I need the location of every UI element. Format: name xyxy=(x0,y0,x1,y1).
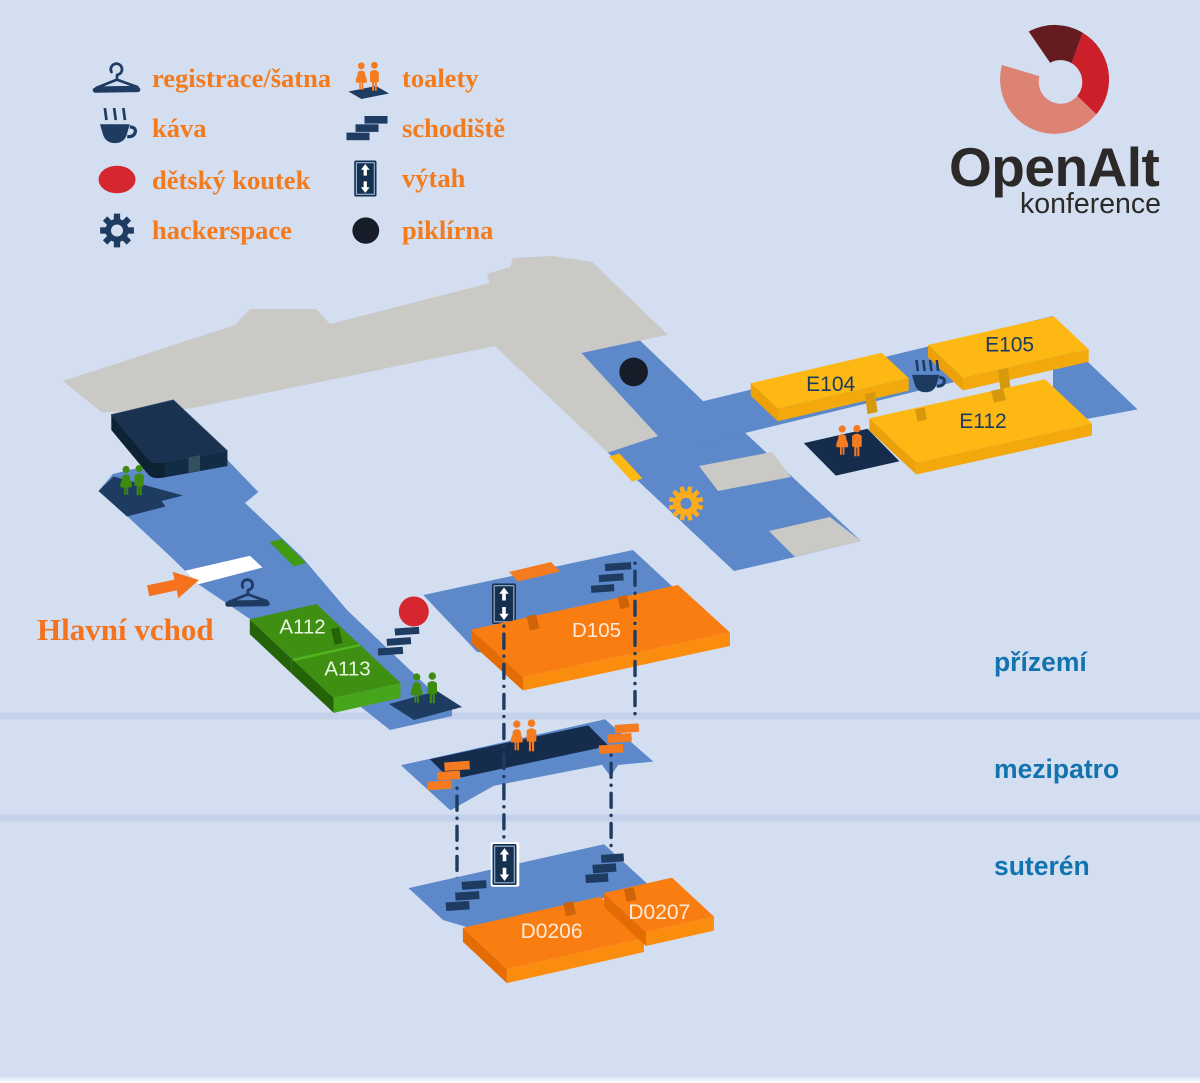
svg-text:E104: E104 xyxy=(806,373,855,396)
svg-text:suterén: suterén xyxy=(994,851,1090,881)
svg-text:E112: E112 xyxy=(959,410,1007,433)
svg-text:schodiště: schodiště xyxy=(402,113,505,143)
svg-text:A113: A113 xyxy=(324,658,370,681)
svg-text:A112: A112 xyxy=(279,616,325,639)
svg-text:E105: E105 xyxy=(985,334,1034,357)
svg-text:piklírna: piklírna xyxy=(402,215,493,245)
svg-text:výtah: výtah xyxy=(402,163,466,193)
svg-text:Hlavní vchod: Hlavní vchod xyxy=(37,612,214,647)
svg-text:toalety: toalety xyxy=(402,63,479,93)
svg-text:přízemí: přízemí xyxy=(994,647,1088,677)
svg-text:D105: D105 xyxy=(572,619,621,642)
svg-text:dětský koutek: dětský koutek xyxy=(152,165,311,195)
svg-text:káva: káva xyxy=(152,113,207,143)
svg-text:hackerspace: hackerspace xyxy=(152,215,292,245)
svg-text:konference: konference xyxy=(1020,188,1161,220)
svg-text:registrace/šatna: registrace/šatna xyxy=(152,63,331,93)
svg-text:D0207: D0207 xyxy=(628,901,690,924)
svg-text:D0206: D0206 xyxy=(521,920,583,943)
svg-text:mezipatro: mezipatro xyxy=(994,754,1119,784)
